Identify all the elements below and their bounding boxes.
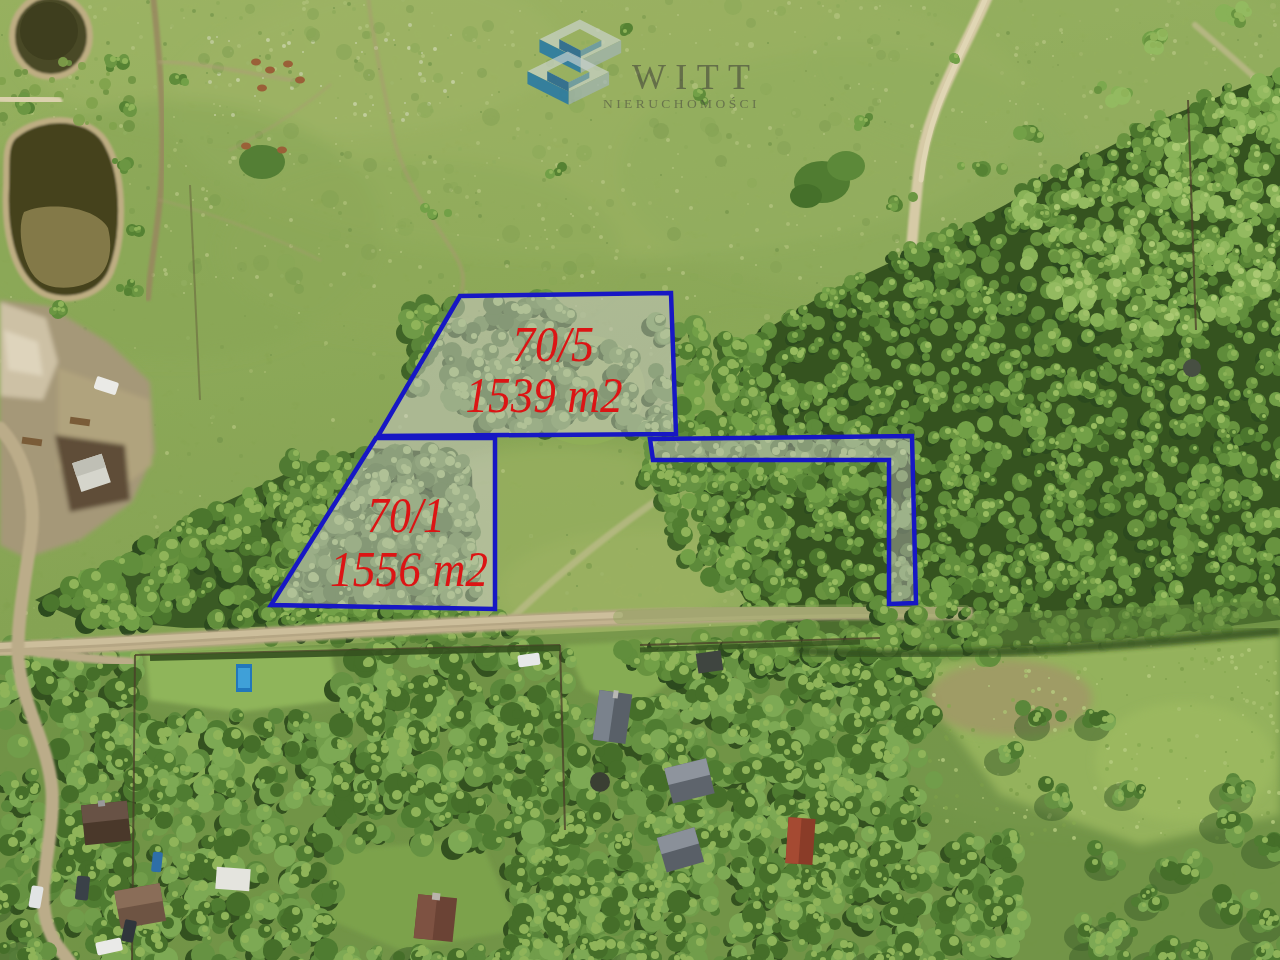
svg-text:1556 m2: 1556 m2 (330, 541, 488, 597)
svg-text:70/1: 70/1 (367, 487, 445, 543)
svg-text:WITT: WITT (632, 57, 764, 97)
svg-text:NIERUCHOMOŚCI: NIERUCHOMOŚCI (603, 96, 761, 111)
svg-text:70/5: 70/5 (512, 316, 594, 372)
svg-text:1539 m2: 1539 m2 (466, 367, 623, 423)
